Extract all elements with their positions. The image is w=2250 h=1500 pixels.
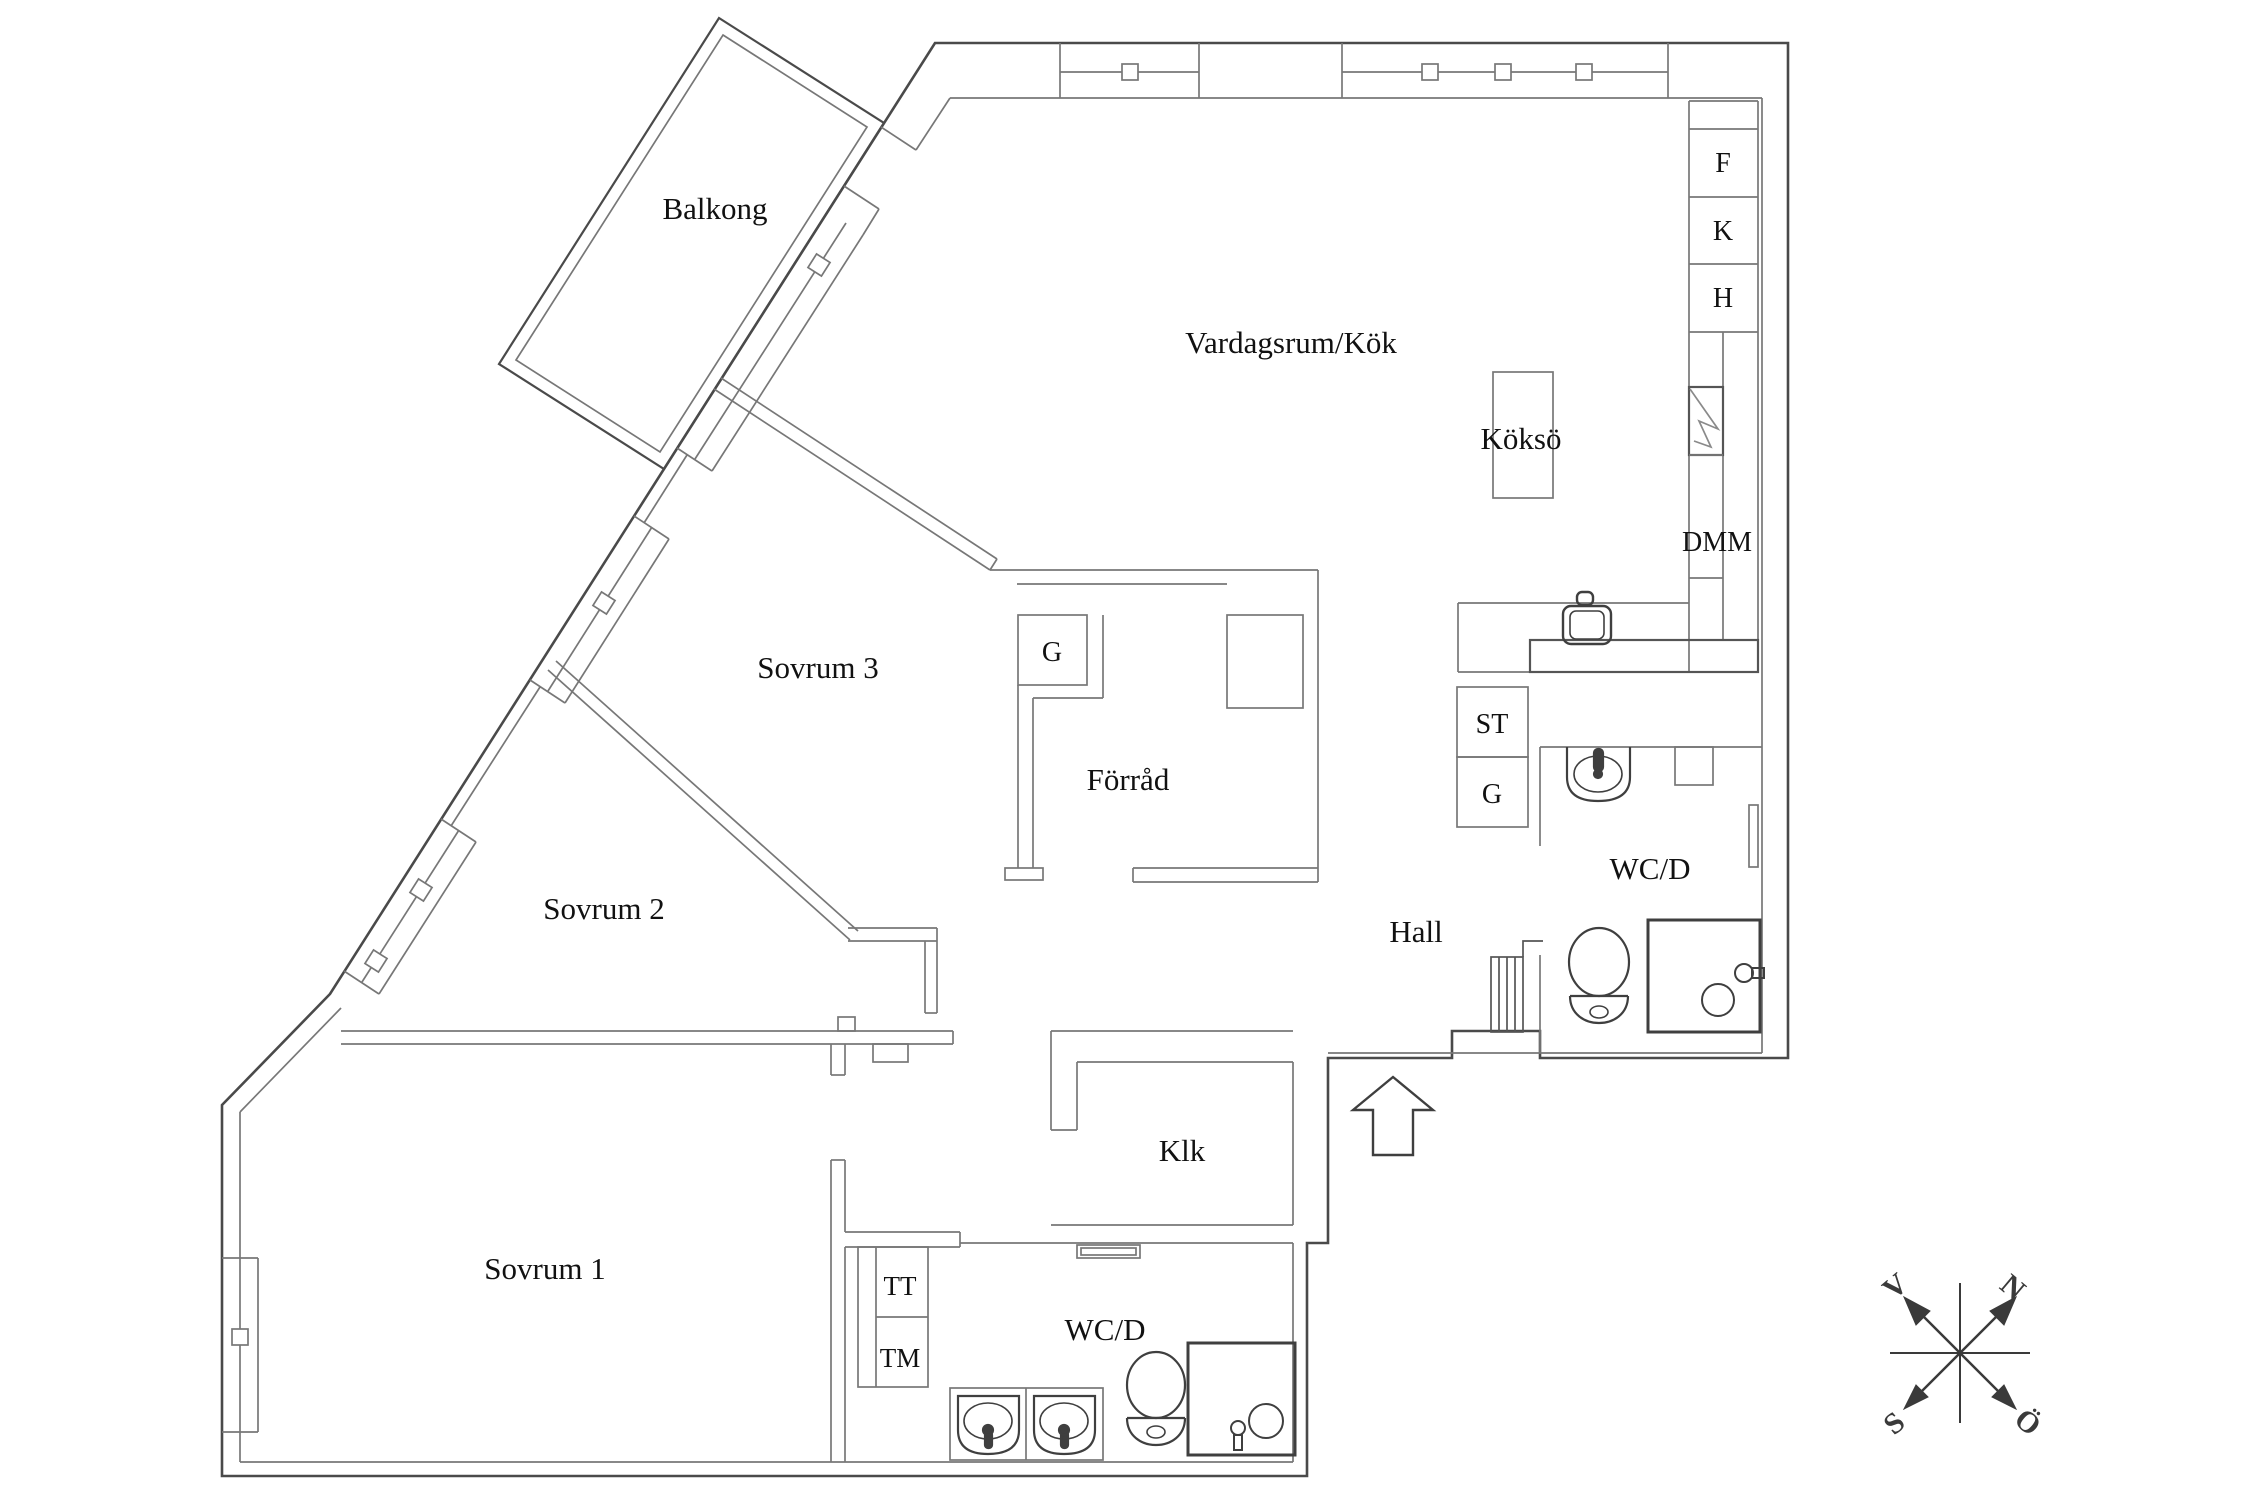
storage-block-walls	[714, 378, 1318, 882]
kitchen-sink-icon	[1563, 592, 1611, 644]
unit-label-wardrobe-hall: G	[1482, 779, 1502, 810]
upper-bathroom	[1491, 747, 1764, 1053]
washbasin-icon	[1567, 747, 1630, 801]
window-marker-icon	[1576, 64, 1592, 80]
left-wall-window	[222, 1112, 258, 1462]
sliding-door-leaf-inner	[1081, 1248, 1136, 1255]
unit-label-dryer: TT	[884, 1271, 917, 1301]
window-marker-icon	[1122, 64, 1138, 80]
wall-end-foot	[1005, 868, 1043, 880]
room-label-klk: Klk	[1159, 1133, 1206, 1168]
room-label-storage: Förråd	[1087, 762, 1170, 797]
shower-icon	[1188, 1343, 1295, 1455]
hall-band-walls	[341, 1017, 1293, 1462]
entrance-arrow-icon	[1353, 1077, 1433, 1155]
toilet-icon	[1569, 928, 1629, 1023]
window-marker-icon	[365, 950, 387, 972]
window-marker-icon	[593, 592, 615, 614]
unit-label-st: ST	[1476, 709, 1509, 740]
room-label-balcony: Balkong	[662, 191, 767, 226]
window-marker-icon	[410, 879, 432, 901]
compass-north-label: N	[1994, 1268, 2032, 1307]
bathroom-shelf	[1675, 747, 1713, 785]
lower-bathroom	[858, 1247, 1295, 1460]
door-jamb	[838, 1017, 855, 1031]
room-label-bedroom3: Sovrum 3	[757, 650, 878, 685]
outer-walls	[222, 43, 1788, 1476]
floorplan-page: V N S Ö Balkong Vardagsrum/Kök Köksö Sov…	[0, 0, 2250, 1500]
toilet-icon	[1127, 1352, 1185, 1445]
balcony-walls	[499, 18, 884, 469]
sliding-door-leaf	[1077, 1245, 1140, 1258]
room-label-hall: Hall	[1389, 914, 1442, 949]
radiator-icon	[1491, 941, 1543, 1032]
unit-label-dishwasher: DMM	[1682, 527, 1752, 558]
room-label-living: Vardagsrum/Kök	[1185, 325, 1397, 360]
room-label-wc-upper: WC/D	[1610, 851, 1691, 886]
unit-label-cabinet: H	[1713, 283, 1733, 314]
unit-label-wardrobe-bed3: G	[1042, 637, 1062, 668]
room-label-bedroom2: Sovrum 2	[543, 891, 664, 926]
unit-label-freezer: F	[1715, 148, 1731, 179]
door-jamb	[873, 1044, 908, 1062]
room-label-wc-lower: WC/D	[1065, 1312, 1146, 1347]
towel-rail	[1749, 805, 1758, 867]
inner-boundary-lines	[240, 98, 1762, 1462]
bedroom-divider-wall	[548, 661, 937, 1013]
window-marker-icon	[808, 254, 830, 276]
hob-icon	[1690, 389, 1718, 447]
window-marker-icon	[232, 1329, 248, 1345]
shower-icon	[1648, 920, 1764, 1032]
unit-label-washer: TM	[880, 1343, 921, 1373]
room-label-island: Köksö	[1481, 421, 1562, 456]
shaft-box	[1227, 615, 1303, 708]
diagonal-wall	[240, 98, 950, 1112]
double-washbasin-icon	[950, 1388, 1103, 1460]
top-wall-windows	[950, 43, 1762, 98]
unit-label-fridge: K	[1713, 216, 1733, 247]
floorplan-drawing: V N S Ö Balkong Vardagsrum/Kök Köksö Sov…	[0, 0, 2250, 1500]
kitchen-units	[1458, 101, 1758, 672]
compass-south-label: S	[1877, 1405, 1911, 1441]
room-label-bedroom1: Sovrum 1	[484, 1251, 605, 1286]
window-marker-icon	[1495, 64, 1511, 80]
window-marker-icon	[1422, 64, 1438, 80]
